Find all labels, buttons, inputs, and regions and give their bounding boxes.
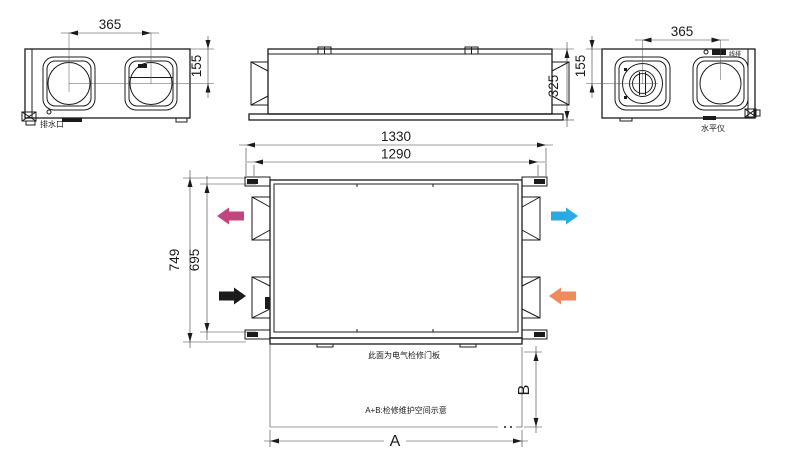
dim-port-offset-label: 155 — [573, 55, 588, 78]
corner-fitting-icon — [745, 109, 760, 117]
dim-overall-width-label: 749 — [167, 249, 182, 272]
plan-view: 1330 1290 — [167, 129, 578, 348]
service-space-area: B A 此面为电气检修门板 A+B:检修维护空间示意 — [264, 344, 542, 450]
unit-casing-outline — [268, 49, 552, 114]
unit-body-outline — [270, 180, 522, 338]
dim-height-label: 325 — [546, 75, 561, 98]
drain-outlet-label: 排水口 — [40, 119, 64, 129]
drawing-canvas: 365 155 排水口 — [0, 0, 790, 469]
dim-body-width-label: 695 — [187, 249, 202, 272]
screw-dot-icon — [704, 50, 708, 54]
dim-service-width-label: A — [390, 433, 401, 450]
bottom-latch-icon — [62, 118, 82, 122]
unit-body-inner — [274, 184, 518, 332]
dim-port-spacing-label: 365 — [671, 24, 694, 39]
terminal-strip-label: 线排 — [729, 50, 741, 58]
duct-collar-icon — [251, 62, 268, 105]
access-panel-note: 此面为电气检修门板 — [368, 350, 440, 360]
mounting-bracket-icon — [245, 177, 270, 186]
access-door-edge — [270, 338, 522, 344]
left-end-view: 365 155 排水口 — [22, 17, 214, 129]
level-gauge-icon — [703, 116, 716, 120]
right-end-view: 365 155 线排 水平仪 — [573, 24, 760, 133]
dim-service-depth-label: B — [516, 385, 533, 396]
duct-collar-icon — [252, 277, 270, 318]
port-latch-icon — [138, 64, 147, 68]
mounting-bracket-icon — [522, 177, 547, 186]
dim-port-spacing-label: 365 — [99, 17, 122, 32]
duct-collar-icon — [522, 197, 540, 240]
duct-collar-icon — [252, 197, 270, 240]
duct-collar-icon — [522, 277, 540, 318]
hanger-clip-icon — [465, 47, 478, 54]
terminal-strip-icon — [712, 49, 726, 55]
door-latch-icon — [317, 344, 333, 347]
dim-port-offset-label: 155 — [189, 55, 204, 78]
mounting-bracket-icon — [522, 330, 547, 339]
return-air-arrow-icon — [549, 288, 576, 305]
hanger-clip-icon — [318, 47, 331, 54]
mounting-bracket-icon — [245, 330, 270, 339]
supply-air-arrow-icon — [551, 208, 578, 225]
dim-mount-length-label: 1290 — [381, 147, 411, 162]
service-space-note: A+B:检修维护空间示意 — [365, 405, 447, 415]
fresh-air-arrow-icon — [219, 288, 246, 305]
hvac-dimension-drawing: 365 155 排水口 — [0, 0, 790, 469]
dim-overall-length-label: 1330 — [381, 129, 411, 144]
base-plate — [249, 114, 563, 120]
exhaust-air-arrow-icon — [217, 208, 244, 225]
drain-dot-icon — [47, 110, 51, 114]
foot-icon — [620, 118, 632, 121]
front-view: 325 — [249, 42, 574, 127]
level-gauge-label: 水平仪 — [701, 123, 725, 133]
door-latch-icon — [460, 344, 476, 347]
